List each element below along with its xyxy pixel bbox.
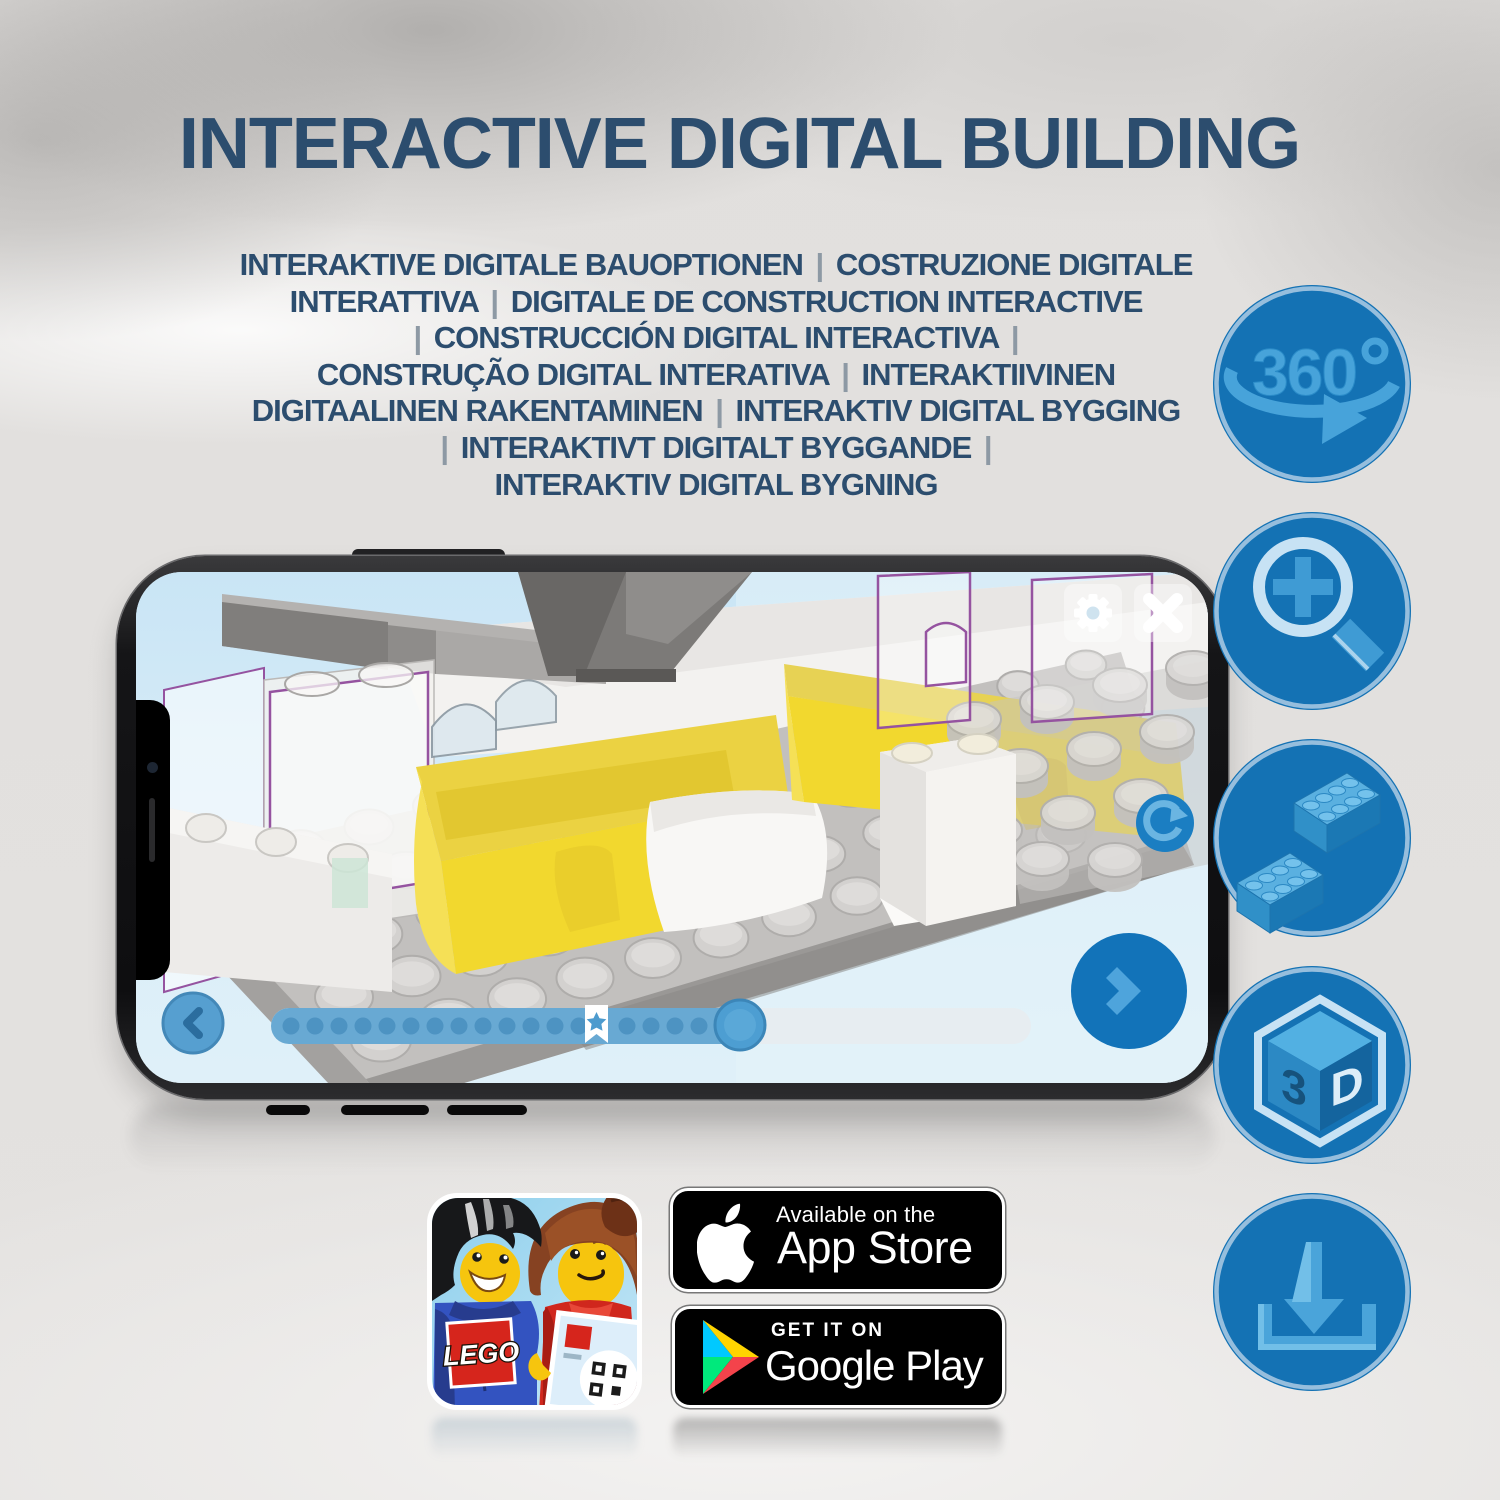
svg-text:3: 3 bbox=[1281, 1058, 1307, 1119]
svg-text:LEGO: LEGO bbox=[442, 1336, 520, 1371]
svg-text:360: 360 bbox=[1252, 335, 1356, 409]
